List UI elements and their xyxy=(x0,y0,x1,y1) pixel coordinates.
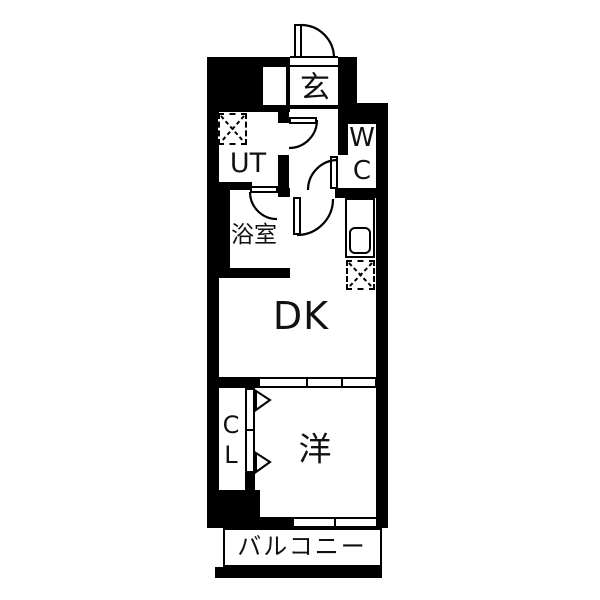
room-label-genkan: 玄 xyxy=(300,72,330,104)
entrance-step-niche xyxy=(263,67,286,105)
sliding-door-divider xyxy=(341,377,343,388)
wall-segment xyxy=(335,188,376,198)
wall-segment xyxy=(278,188,290,197)
wall-segment xyxy=(219,268,290,278)
floor-plan: 玄 UT WC 浴室 DK CL 洋 バルコニー xyxy=(0,0,600,600)
wall-segment xyxy=(338,124,348,155)
wall-segment xyxy=(376,103,388,528)
wall-segment xyxy=(278,155,289,188)
room-label-bathroom: 浴室 xyxy=(231,223,277,247)
wall-segment xyxy=(245,473,255,490)
folding-door-triangle xyxy=(256,453,270,472)
wall-segment xyxy=(278,112,289,123)
genkan-hall-divider xyxy=(290,105,338,109)
wall-segment xyxy=(260,517,292,528)
dk-door-leaf xyxy=(293,197,301,235)
utility-door-leaf xyxy=(289,117,317,124)
wc-line2: C xyxy=(353,156,371,186)
cl-line2: L xyxy=(224,441,237,469)
wall-segment xyxy=(219,182,252,190)
cl-line1: C xyxy=(223,411,240,439)
room-label-wc: WC xyxy=(349,122,375,188)
room-label-western-room: 洋 xyxy=(299,433,332,468)
room-label-balcony: バルコニー xyxy=(237,534,367,559)
utility-door-swing-arc xyxy=(289,120,317,148)
wall-segment xyxy=(215,567,382,578)
wall-segment xyxy=(207,377,258,388)
washer-pan-symbol xyxy=(218,113,247,145)
entrance-door-leaf xyxy=(294,24,302,58)
entrance-door-swing-arc xyxy=(301,25,334,58)
dk-western-sliding-door xyxy=(258,377,377,388)
refrigerator-symbol xyxy=(346,260,375,290)
closet-panel-divider xyxy=(245,429,255,431)
wall-segment xyxy=(338,57,357,124)
dk-door-swing-arc xyxy=(297,199,333,235)
wc-line1: W xyxy=(349,123,375,153)
wall-segment xyxy=(207,112,219,528)
bathroom-door-swing-arc xyxy=(250,192,277,219)
sliding-door-divider xyxy=(334,517,336,528)
wall-segment xyxy=(219,190,230,268)
bathroom-door-leaf xyxy=(250,186,278,193)
room-label-utility: UT xyxy=(230,150,266,178)
room-label-closet: CL xyxy=(223,410,240,470)
wall-segment xyxy=(219,490,260,528)
kitchen-sink xyxy=(349,227,371,254)
room-label-dk: DK xyxy=(273,297,329,337)
wc-door-leaf xyxy=(330,156,338,189)
folding-door-triangle xyxy=(256,391,270,410)
sliding-door-divider xyxy=(306,377,308,388)
